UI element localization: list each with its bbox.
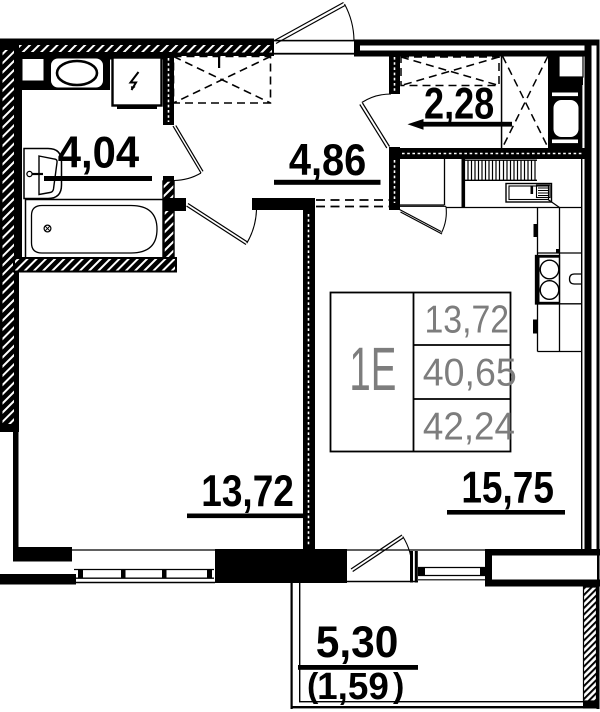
svg-text:): ): [393, 667, 404, 705]
svg-text:1E: 1E: [349, 335, 396, 403]
svg-text:4,86: 4,86: [289, 135, 366, 185]
svg-text:13,72: 13,72: [201, 466, 294, 516]
svg-text:40,65: 40,65: [423, 351, 517, 395]
svg-text:1,59: 1,59: [317, 664, 389, 707]
svg-text:2,28: 2,28: [424, 78, 494, 129]
svg-text:13,72: 13,72: [424, 297, 509, 341]
svg-text:4,04: 4,04: [58, 128, 139, 177]
svg-text:15,75: 15,75: [461, 462, 554, 512]
svg-text:5,30: 5,30: [316, 618, 399, 667]
svg-text:42,24: 42,24: [423, 406, 515, 449]
